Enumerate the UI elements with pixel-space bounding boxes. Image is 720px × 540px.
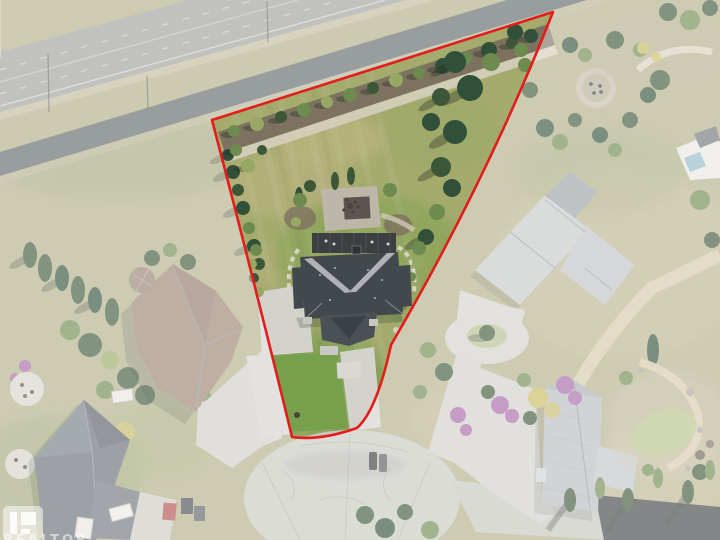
chimney	[352, 246, 361, 254]
watermark-text: REALTOR	[3, 533, 89, 540]
aerial-property-photo: REALTOR	[0, 0, 720, 540]
lawn-pad	[337, 361, 362, 378]
photo-canvas: REALTOR	[0, 0, 720, 540]
pergola	[343, 196, 370, 219]
